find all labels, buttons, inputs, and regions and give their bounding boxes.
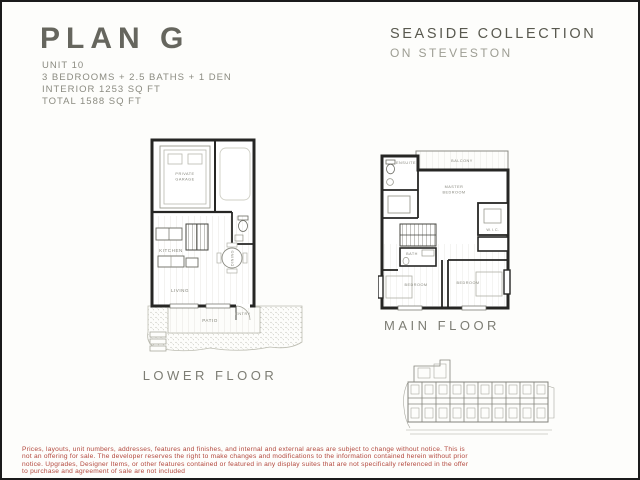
window-icon	[504, 270, 510, 294]
legal-disclaimer: Prices, layouts, unit numbers, addresses…	[22, 446, 624, 476]
living-label: LIVING	[171, 288, 189, 293]
disclaimer-line: not an offering for sale. The developer …	[22, 453, 624, 460]
lower-floor-plan: PRIVATE GARAGE KITCHEN	[140, 136, 312, 368]
main-floor-plan: BALCONY ENSUITE MASTER BEDROOM	[378, 148, 513, 316]
brochure-page: PLAN G UNIT 10 3 BEDROOMS + 2.5 BATHS + …	[0, 0, 640, 480]
plan-detail-unit: UNIT 10	[42, 60, 232, 72]
dining-label: DINING	[231, 250, 235, 266]
site-keyplan	[400, 358, 558, 444]
ensuite-label: ENSUITE	[396, 161, 416, 165]
patio-area	[148, 306, 302, 351]
bath-room: BATH	[400, 248, 436, 266]
bay-window-icon	[378, 276, 383, 298]
balcony-label: BALCONY	[451, 159, 473, 163]
plan-detail-interior: INTERIOR 1253 SQ FT	[42, 84, 232, 96]
window-icon	[462, 306, 486, 310]
patio-label: PATIO	[202, 318, 218, 323]
brand-tagline: ON STEVESTON	[390, 46, 596, 60]
window-icon	[398, 306, 422, 310]
patio-steps-icon	[150, 332, 166, 351]
brand-name: SEASIDE COLLECTION	[390, 26, 596, 42]
svg-text:BEDROOM: BEDROOM	[442, 191, 465, 195]
main-floor-caption: MAIN FLOOR	[377, 318, 507, 333]
bath-label: BATH	[406, 252, 418, 256]
brand-block: SEASIDE COLLECTION ON STEVESTON	[390, 26, 596, 60]
kitchen-label: KITCHEN	[159, 248, 183, 253]
wic-room: W.I.C.	[478, 203, 508, 235]
linen-room	[478, 237, 508, 251]
plan-detail-total: TOTAL 1588 SQ FT	[42, 96, 232, 108]
bedroom-right-label: BEDROOM	[456, 281, 479, 285]
plan-detail-rooms: 3 BEDROOMS + 2.5 BATHS + 1 DEN	[42, 72, 232, 84]
stairs-icon	[186, 224, 208, 250]
kitchen-counter-icon	[158, 256, 198, 267]
lower-closet	[156, 228, 182, 240]
bedroom-left-label: BEDROOM	[404, 283, 427, 287]
disclaimer-line: notice. Upgrades, Designer Items, or oth…	[22, 461, 624, 468]
plan-details: UNIT 10 3 BEDROOMS + 2.5 BATHS + 1 DEN I…	[42, 60, 232, 108]
disclaimer-line: to purchase and agreement of sale are no…	[22, 468, 624, 475]
svg-text:GARAGE: GARAGE	[175, 178, 194, 182]
entry-label: ENTRY	[235, 312, 250, 316]
stairs-icon	[400, 224, 436, 246]
disclaimer-line: Prices, layouts, unit numbers, addresses…	[22, 446, 624, 453]
master-bedroom-label: MASTER	[445, 185, 464, 189]
balcony: BALCONY	[416, 151, 508, 170]
garage-label: PRIVATE	[175, 172, 194, 176]
wic-label: W.I.C.	[486, 228, 499, 232]
page-title: PLAN G	[40, 22, 189, 56]
lower-floor-caption: LOWER FLOOR	[120, 368, 300, 383]
